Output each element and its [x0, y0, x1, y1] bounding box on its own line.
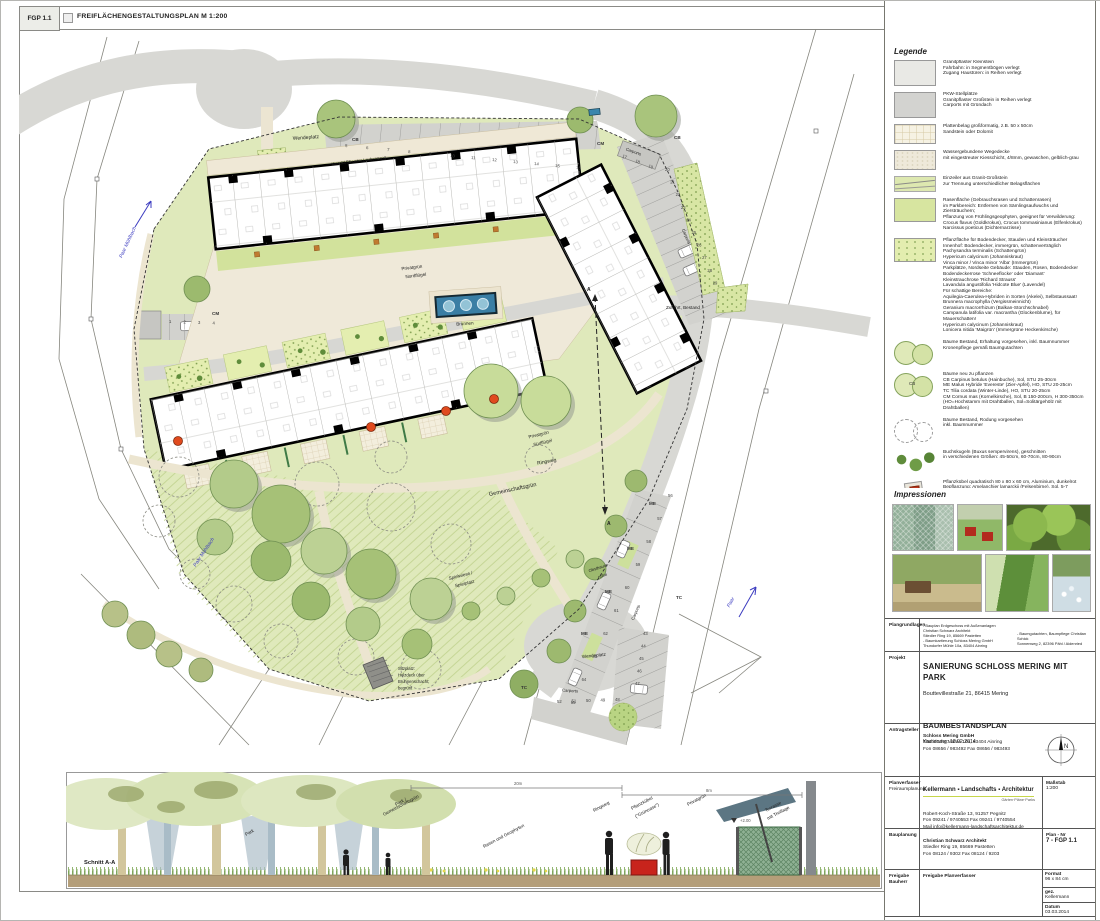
svg-text:60: 60 — [625, 585, 630, 590]
project-title: SANIERUNG SCHLOSS MERING MIT PARK — [923, 662, 1091, 683]
legend-item-buchs: Buchskugeln (Buxus sempervirens), geschn… — [894, 450, 1090, 474]
legend-item-text: Pflanzkübel quadratisch 80 x 80 x 60 cm,… — [943, 480, 1087, 488]
label-sitzplatz-1: Sitzplatz: — [398, 666, 415, 671]
svg-text:ME: ME — [627, 546, 634, 551]
impression-photo-bench — [892, 554, 982, 612]
tb-label: Projekt — [889, 656, 919, 662]
svg-text:58: 58 — [646, 539, 651, 544]
tb-label: Antragsteller — [889, 728, 919, 734]
label-paar-muehlbach-1: Paar Mühlbach — [118, 226, 138, 259]
legend-item-baum-neu: CBBäume neu zu pflanzen CB Carpinus betu… — [894, 372, 1090, 412]
svg-text:26: 26 — [697, 243, 702, 248]
legend-item-text: Rasenfläche (Gebrauchsrasen und Schatten… — [943, 198, 1087, 232]
svg-text:43: 43 — [643, 631, 648, 636]
blue-bench — [589, 108, 601, 115]
svg-text:44: 44 — [641, 644, 646, 649]
legend-item-platten: Plattenbelag großformatig, z.B. 50 x 50c… — [894, 124, 1090, 144]
svg-text:20: 20 — [665, 167, 670, 172]
planverfasser-sublabel: Freiraumplanung — [889, 787, 925, 792]
tb-label: Plangrundlagen — [889, 623, 919, 629]
svg-text:24: 24 — [686, 217, 691, 222]
svg-text:29: 29 — [713, 280, 718, 285]
page-title: FREIFLÄCHENGESTALTUNGSPLAN M 1:200 — [77, 13, 227, 20]
header-top-rule — [19, 6, 884, 7]
planverfasser-firm: Kellermann ▪ Landschafts ▪ Architektur — [923, 787, 1034, 797]
title-block: Plangrundlagen - Bauplan Erdgeschoss mit… — [885, 618, 1095, 917]
svg-text:22: 22 — [676, 192, 681, 197]
label-sitzplatz-3: Brunnenschacht; — [398, 679, 429, 684]
plangrundlagen-col2: - Baumgutachten, Baumpflege Christian Sc… — [1017, 631, 1091, 646]
legend-item-wegedecke: Wassergebundene Wegedecke mit eingestreu… — [894, 150, 1090, 170]
plan-code-cell: FGP 1.1 — [19, 6, 60, 31]
legend-item-pflaster-gross: PKW-Stellplätze Granitpflaster Großstein… — [894, 92, 1090, 118]
planverfasser-tagline: Gärten·Pläne·Parks — [923, 798, 1035, 803]
legend-item-text: Einzeiler aus Granit-Großstein zur Trenn… — [943, 176, 1087, 187]
titleblock-row-bauplanung: Bauplanung Christian Schwarz Architekt S… — [885, 829, 1095, 870]
legend-item-einzeiler: Einzeiler aus Granit-Großstein zur Trenn… — [894, 176, 1090, 192]
legend-swatch-einzeiler — [894, 176, 936, 192]
label-schnitt: Schnitt A-A — [84, 860, 116, 866]
scale-value: 1:200 — [1046, 786, 1058, 791]
svg-text:48: 48 — [615, 697, 620, 702]
svg-text:28: 28 — [707, 268, 712, 273]
svg-text:ME: ME — [649, 501, 656, 506]
legend-swatch-buchs — [894, 450, 936, 474]
freigabe-label: Freigabe — [889, 874, 909, 879]
svg-text:45: 45 — [639, 656, 644, 661]
svg-text:59: 59 — [636, 562, 641, 567]
bauplanung-name: Christian Schwarz Architekt — [923, 839, 987, 844]
legend-item-text: Buchskugeln (Buxus sempervirens), geschn… — [943, 450, 1087, 461]
dim-20m: 20m — [514, 781, 523, 786]
legend-item-text: Bäume Bestand, Rodung vorgesehen inkl. B… — [943, 418, 1087, 429]
titleblock-row-freigabe: Freigabe Bauherr Freigabe Planverfasser … — [885, 870, 1095, 917]
plangrundlagen-col1: - Bauplan Erdgeschoss mit Außenanlagen C… — [923, 623, 1011, 648]
antragsteller-name: Schloss Mering GmbH — [923, 734, 974, 739]
legend-swatch-pflaster-klein — [894, 60, 936, 86]
legend-swatch-wegedecke — [894, 150, 936, 170]
legend-swatch-pflanzflaeche — [894, 238, 936, 262]
north-compass-icon: N — [1043, 732, 1079, 768]
svg-text:61: 61 — [614, 608, 619, 613]
section-marker-a-bottom: A — [607, 521, 611, 527]
legend-swatch-baum-neu: CB — [894, 372, 936, 398]
impression-photo-trellis — [892, 504, 954, 551]
site-plan: A A Paar Mühlbach Paar Mühlbach Paar Wen… — [19, 29, 884, 772]
legend-item-text: Granitpflaster Kleinstein Fahrbahn: in S… — [943, 60, 1087, 77]
svg-text:62: 62 — [603, 631, 608, 636]
dim-level: +2.00 — [740, 818, 751, 823]
tb-label: Bauplanung — [889, 833, 919, 839]
format-value: 96 x 84 cm — [1045, 877, 1068, 882]
legend-item-text: Pflanzfläche für Bodendecker, Stauden un… — [943, 238, 1087, 334]
legend-swatch-rasen — [894, 198, 936, 222]
gez-value: Kellermann — [1045, 895, 1069, 900]
legend-swatch-baum-rodung — [894, 418, 936, 444]
impression-photo-planters — [957, 504, 1003, 551]
label-zufahrt: Zufahrt, Bestand — [666, 305, 700, 310]
legend-item-text: Plattenbelag großformatig, z.B. 50 x 50c… — [943, 124, 1087, 135]
section-ground — [68, 875, 880, 887]
svg-text:56: 56 — [668, 493, 673, 498]
svg-text:ME: ME — [581, 631, 588, 636]
titleblock-row-antragsteller: Antragsteller Schloss Mering GmbH Thundo… — [885, 724, 1095, 777]
svg-text:25: 25 — [692, 230, 697, 235]
svg-text:ME: ME — [605, 589, 612, 594]
label-sitzplatz-4: begrünt — [398, 686, 413, 691]
svg-text:52: 52 — [557, 699, 562, 704]
svg-text:57: 57 — [657, 516, 662, 521]
legend-heading: Legende — [894, 47, 927, 56]
svg-text:27: 27 — [702, 255, 707, 260]
legend-swatch-baum-bestand — [894, 340, 936, 366]
legend-swatch-kuebel — [894, 480, 936, 488]
label-paar: Paar — [726, 596, 736, 608]
legend-item-pflaster-klein: Granitpflaster Kleinstein Fahrbahn: in S… — [894, 60, 1090, 86]
info-panel: Legende Granitpflaster Kleinstein Fahrba… — [884, 1, 1096, 920]
impression-photo-buxus — [1006, 504, 1091, 551]
label-sitzplatz-2: Holzdeck über — [398, 673, 425, 678]
legend-item-pflanzflaeche: Pflanzfläche für Bodendecker, Stauden un… — [894, 238, 1090, 334]
svg-text:23: 23 — [681, 205, 686, 210]
project-address: Bouttevillestraße 21, 86415 Mering — [923, 691, 1091, 698]
svg-text:50: 50 — [586, 698, 591, 703]
legend-item-baum-rodung: Bäume Bestand, Rodung vorgesehen inkl. B… — [894, 418, 1090, 444]
svg-text:51: 51 — [572, 699, 577, 704]
svg-text:CB: CB — [352, 137, 359, 142]
fountain — [429, 287, 503, 324]
legend-item-text: PKW-Stellplätze Granitpflaster Großstein… — [943, 92, 1087, 109]
plannr-value: 7 - FGP 1.1 — [1046, 838, 1077, 844]
header-checkbox-icon — [63, 13, 73, 23]
legend-item-text: Wassergebundene Wegedecke mit eingestreu… — [943, 150, 1087, 161]
datum-value: 03.03.2014 — [1045, 910, 1069, 915]
svg-text:TC: TC — [521, 685, 528, 690]
svg-text:46: 46 — [637, 669, 642, 674]
titleblock-row-plangrundlagen: Plangrundlagen - Bauplan Erdgeschoss mit… — [885, 619, 1095, 652]
svg-text:TC: TC — [676, 595, 683, 600]
plan-sheet: FGP 1.1 FREIFLÄCHENGESTALTUNGSPLAN M 1:2… — [0, 0, 1100, 921]
svg-text:CB: CB — [674, 135, 681, 140]
section-marker-a-top: A — [587, 287, 591, 293]
impressionen-heading: Impressionen — [894, 490, 946, 499]
legend-swatch-pflaster-gross — [894, 92, 936, 118]
legend-item-rasen: Rasenfläche (Gebrauchsrasen und Schatten… — [894, 198, 1090, 232]
section-drawing: 20m 8m +2.00 Schnitt A-A Park Park / Gem… — [66, 772, 882, 889]
svg-text:CM: CM — [597, 141, 604, 146]
dim-8m: 8m — [706, 788, 712, 793]
titleblock-row-planverfasser: Planverfasser Freiraumplanung Kellermann… — [885, 777, 1095, 829]
impression-photo-flowers — [1052, 554, 1091, 612]
legend-item-baum-bestand: Bäume Bestand, Erhaltung vorgesehen, ink… — [894, 340, 1090, 366]
plan-code: FGP 1.1 — [27, 15, 51, 22]
legend-list: Granitpflaster Kleinstein Fahrbahn: in S… — [894, 60, 1090, 488]
section-wall — [806, 781, 816, 875]
freigabe-sublabel: Bauherr — [889, 880, 907, 885]
bottom-margin-rule — [19, 891, 884, 892]
legend-item-kuebel: Pflanzkübel quadratisch 80 x 80 x 60 cm,… — [894, 480, 1090, 488]
label-carports-mid: Carports — [630, 604, 641, 621]
svg-text:64: 64 — [582, 677, 587, 682]
svg-text:N: N — [1064, 744, 1068, 750]
antragsteller-lines: Thundorfer Mühle 10a, 83404 Ainring Fon … — [923, 740, 1023, 752]
svg-text:63: 63 — [592, 654, 597, 659]
impressionen-photos — [892, 504, 1091, 615]
titleblock-row-projekt: Projekt SANIERUNG SCHLOSS MERING MIT PAR… — [885, 652, 1095, 724]
svg-text:CM: CM — [212, 311, 219, 316]
legend-swatch-platten — [894, 124, 936, 144]
legend-item-text: Bäume Bestand, Erhaltung vorgesehen, ink… — [943, 340, 1087, 351]
impression-photo-hedge — [985, 554, 1048, 612]
planverfasser-label: Planverfasser — [889, 781, 920, 786]
svg-text:21: 21 — [670, 180, 675, 185]
svg-text:49: 49 — [601, 698, 606, 703]
svg-text:47: 47 — [635, 681, 640, 686]
legend-item-text: Bäume neu zu pflanzen CB Carpinus betulu… — [943, 372, 1087, 412]
bauplanung-lines: Stiedler Ring 19, 85669 Pastetten Fon 08… — [923, 845, 1035, 857]
